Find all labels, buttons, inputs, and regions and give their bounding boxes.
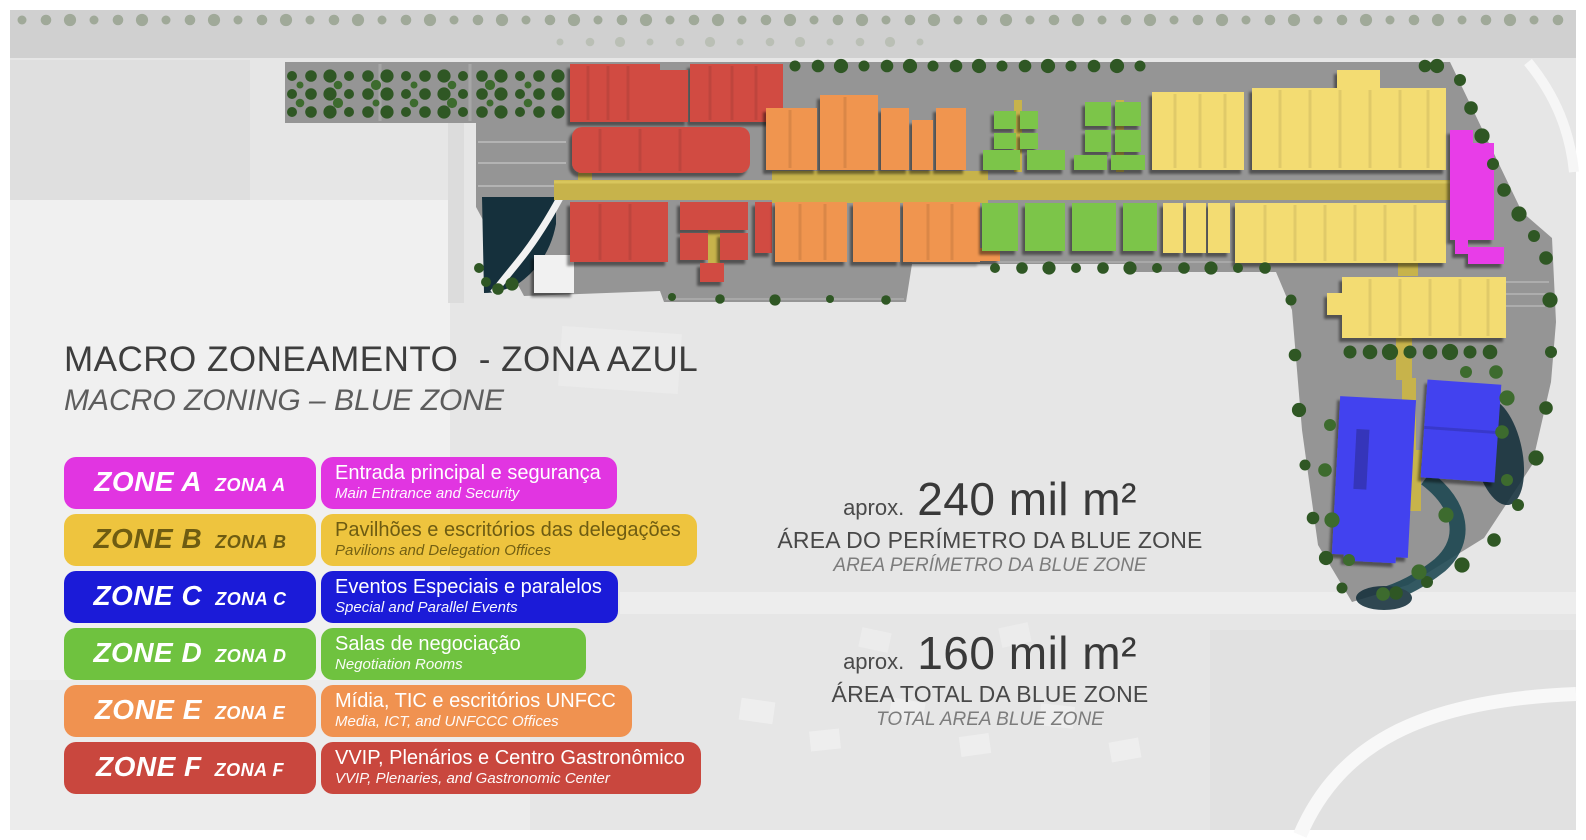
stat-total-label: ÁREA TOTAL DA BLUE ZONE bbox=[760, 681, 1220, 708]
zone-f-label-pt: ZONA F bbox=[215, 760, 284, 781]
stat-perimeter-value: 240 mil m² bbox=[917, 472, 1137, 526]
zone-f-description: VVIP, Plenários e Centro Gastronômico VV… bbox=[321, 742, 701, 794]
zone-a-description: Entrada principal e segurança Main Entra… bbox=[321, 457, 617, 509]
zone-c-desc-en: Special and Parallel Events bbox=[335, 599, 602, 616]
zone-f-badge: ZONE F ZONA F bbox=[64, 742, 316, 794]
title-portuguese: MACRO ZONEAMENTO - ZONA AZUL bbox=[64, 340, 698, 380]
legend-row-zone-a: ZONE A ZONA A Entrada principal e segura… bbox=[64, 457, 701, 509]
zone-a-badge: ZONE A ZONA A bbox=[64, 457, 316, 509]
zone-b-label: ZONE B bbox=[93, 523, 202, 555]
zone-d-label-pt: ZONA D bbox=[215, 646, 286, 667]
zone-a-desc-pt: Entrada principal e segurança bbox=[335, 462, 601, 486]
zone-e-label-pt: ZONA E bbox=[215, 703, 285, 724]
zone-a-desc-en: Main Entrance and Security bbox=[335, 485, 601, 502]
zone-b-desc-en: Pavilions and Delegation Offices bbox=[335, 542, 681, 559]
zone-d-desc-pt: Salas de negociação bbox=[335, 633, 570, 657]
parking-strip-trees bbox=[287, 69, 565, 118]
stat-perimeter-area: aprox. 240 mil m² ÁREA DO PERÍMETRO DA B… bbox=[760, 472, 1220, 577]
zone-c-label-pt: ZONA C bbox=[215, 589, 286, 610]
page-title: MACRO ZONEAMENTO - ZONA AZUL MACRO ZONIN… bbox=[64, 340, 698, 418]
stat-perimeter-value-line: aprox. 240 mil m² bbox=[760, 472, 1220, 526]
zone-d-desc-en: Negotiation Rooms bbox=[335, 656, 570, 673]
zone-c-desc-pt: Eventos Especiais e paralelos bbox=[335, 576, 602, 600]
zone-e-badge: ZONE E ZONA E bbox=[64, 685, 316, 737]
zone-legend: ZONE A ZONA A Entrada principal e segura… bbox=[64, 457, 701, 794]
macro-zoning-slide: MACRO ZONEAMENTO - ZONA AZUL MACRO ZONIN… bbox=[0, 0, 1586, 840]
stat-perimeter-prefix: aprox. bbox=[843, 495, 904, 521]
zone-a-label: ZONE A bbox=[94, 466, 202, 498]
legend-row-zone-b: ZONE B ZONA B Pavilhões e escritórios da… bbox=[64, 514, 701, 566]
stat-perimeter-label-en: AREA PERÍMETRO DA BLUE ZONE bbox=[760, 555, 1220, 577]
stat-total-value: 160 mil m² bbox=[917, 626, 1137, 680]
zone-c-description: Eventos Especiais e paralelos Special an… bbox=[321, 571, 618, 623]
zone-e-desc-pt: Mídia, TIC e escritórios UNFCC bbox=[335, 690, 616, 714]
zone-f-desc-pt: VVIP, Plenários e Centro Gastronômico bbox=[335, 747, 685, 771]
zone-d-description: Salas de negociação Negotiation Rooms bbox=[321, 628, 586, 680]
stat-total-area: aprox. 160 mil m² ÁREA TOTAL DA BLUE ZON… bbox=[760, 626, 1220, 731]
stat-total-prefix: aprox. bbox=[843, 649, 904, 675]
zone-d-label: ZONE D bbox=[93, 637, 202, 669]
zone-f-desc-en: VVIP, Plenaries, and Gastronomic Center bbox=[335, 770, 685, 787]
zone-b-badge: ZONE B ZONA B bbox=[64, 514, 316, 566]
white-building bbox=[534, 255, 574, 293]
title-english: MACRO ZONING – BLUE ZONE bbox=[64, 384, 698, 418]
legend-row-zone-d: ZONE D ZONA D Salas de negociação Negoti… bbox=[64, 628, 701, 680]
stat-perimeter-label: ÁREA DO PERÍMETRO DA BLUE ZONE bbox=[760, 527, 1220, 554]
zone-f-label: ZONE F bbox=[96, 751, 202, 783]
zone-c-badge: ZONE C ZONA C bbox=[64, 571, 316, 623]
legend-row-zone-c: ZONE C ZONA C Eventos Especiais e parale… bbox=[64, 571, 701, 623]
legend-row-zone-e: ZONE E ZONA E Mídia, TIC e escritórios U… bbox=[64, 685, 701, 737]
zone-a-label-pt: ZONA A bbox=[215, 475, 286, 496]
zone-c-label: ZONE C bbox=[93, 580, 202, 612]
stat-total-value-line: aprox. 160 mil m² bbox=[760, 626, 1220, 680]
zone-b-description: Pavilhões e escritórios das delegações P… bbox=[321, 514, 697, 566]
zone-e-desc-en: Media, ICT, and UNFCCC Offices bbox=[335, 713, 616, 730]
zone-e-label: ZONE E bbox=[95, 694, 202, 726]
legend-row-zone-f: ZONE F ZONA F VVIP, Plenários e Centro G… bbox=[64, 742, 701, 794]
zone-d-badge: ZONE D ZONA D bbox=[64, 628, 316, 680]
zone-b-label-pt: ZONA B bbox=[215, 532, 286, 553]
zone-e-description: Mídia, TIC e escritórios UNFCC Media, IC… bbox=[321, 685, 632, 737]
zone-b-desc-pt: Pavilhões e escritórios das delegações bbox=[335, 519, 681, 543]
stat-total-label-en: TOTAL AREA BLUE ZONE bbox=[760, 709, 1220, 731]
